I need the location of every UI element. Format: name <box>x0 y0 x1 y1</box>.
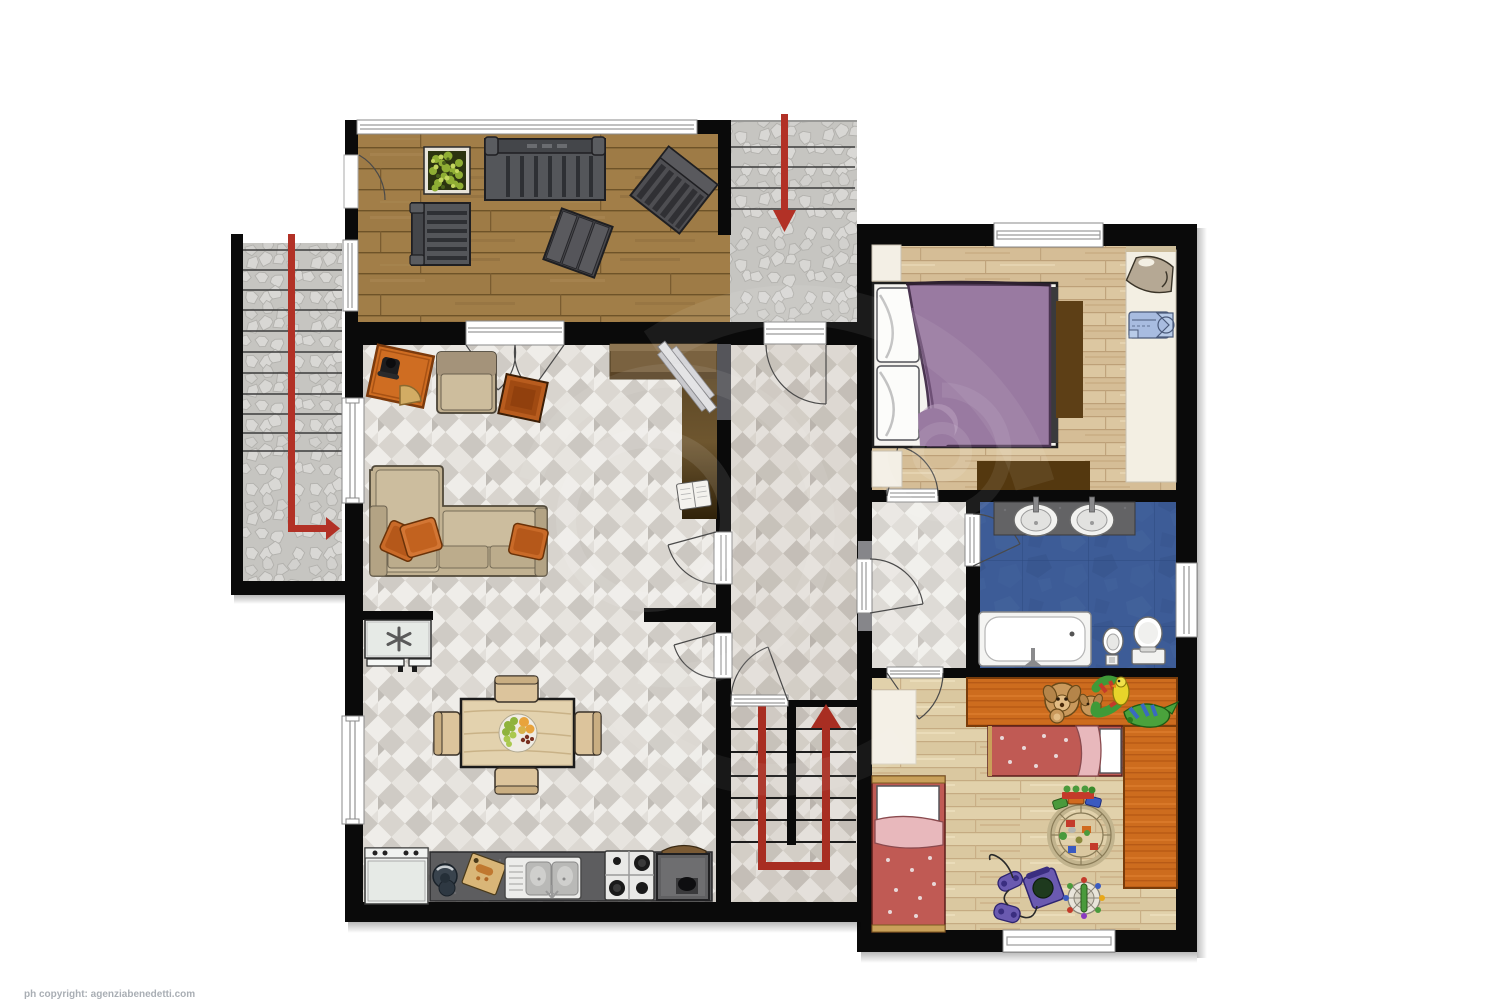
svg-text:ph copyright: agenziabenedetti: ph copyright: agenziabenedetti.com <box>24 989 195 1000</box>
